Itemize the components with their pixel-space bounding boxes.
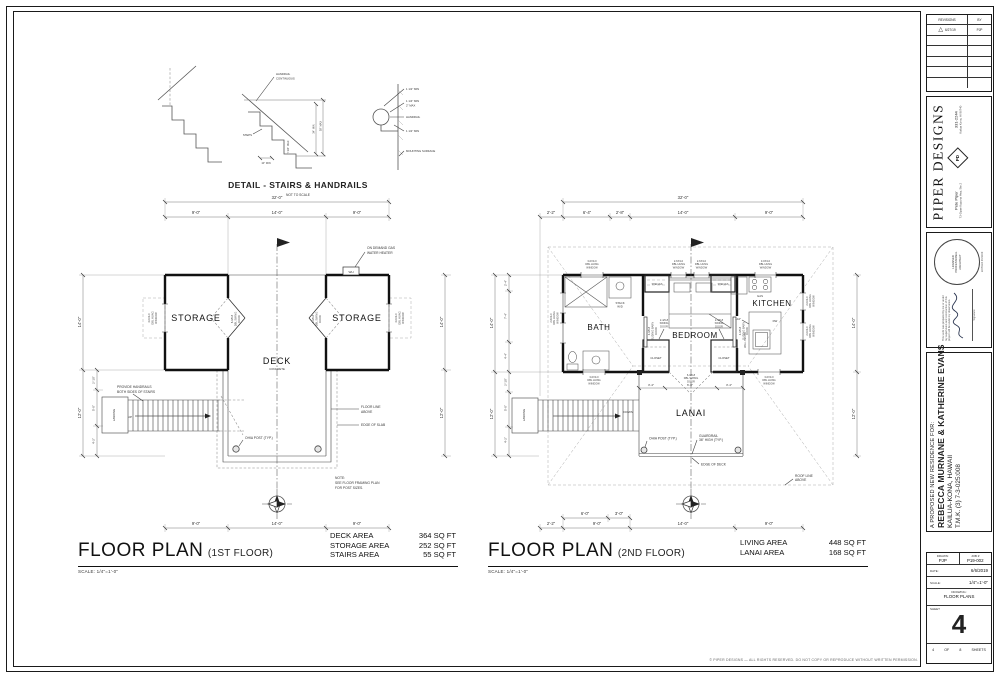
sheet-count-of: OF: [944, 648, 949, 652]
dim-label: 4'-4": [504, 353, 508, 359]
dim-label: 12'-0": [77, 407, 82, 418]
area-row: LANAI AREA 168 SQ FT: [740, 548, 866, 558]
door-tag: 4-0/6-8: [647, 326, 651, 335]
floor1-scale: SCALE: 1/4"=1'-0": [78, 569, 118, 574]
revision-by: PJP: [968, 25, 991, 35]
drawing-row: DRAWING: FLOOR PLANS: [927, 589, 991, 606]
revisions-header-label: REVISIONS: [927, 15, 968, 24]
scale-label: SCALE:: [930, 581, 941, 585]
dim-label: 9'-0": [765, 521, 774, 526]
room-label-kitchen: KITCHEN: [752, 299, 791, 308]
room-label-bath: BATH: [587, 323, 610, 332]
dim-label: 2'-4": [504, 280, 508, 286]
room-sublabel: CONCRETE: [269, 367, 285, 371]
project-owner: REBECCA MURNANE & KATHERINE EVANS: [936, 356, 946, 528]
detail-dim: 34" MIN: [312, 124, 316, 133]
north-arrow-icon: [676, 489, 706, 519]
firm-block-content: PIPER DESIGNS Pete Piper 73-Opae Kupuna …: [930, 104, 988, 221]
scale-value: 1/4"=1'-0": [969, 580, 988, 585]
drawing-sheet: HANDRAIL CONTINUOUS STEPS 10" MIN 7 3/4"…: [0, 0, 1000, 678]
dim-label: 3'-4": [648, 383, 654, 387]
detail-callout: STEPS: [243, 133, 252, 137]
door-tag: 6-0/6-8: [230, 314, 234, 323]
floor2-subtitle: (2ND FLOOR): [618, 548, 685, 559]
second-floor-plan: 32'-0" 2'-2" 6'-4" 2'-8" 14'-0" 9'-0" 6'…: [483, 188, 883, 540]
floor2-roof-lines: [548, 247, 833, 485]
range-label: GAS: [757, 294, 763, 298]
detail-dim: 38" MAX: [319, 121, 323, 131]
revision-row-empty: [927, 46, 991, 57]
area-label: LANAI AREA: [740, 548, 784, 558]
water-heater-tag: WH: [349, 270, 354, 274]
revision-delta-icon: △: [938, 27, 943, 33]
architect-seal-icon: LICENSED PROFESSIONAL ARCHITECT: [934, 239, 980, 285]
detail-dim: 1 1/2" MIN: [406, 87, 419, 91]
area-value: 252 SQ FT: [419, 541, 456, 551]
door-tag: DOOR: [660, 324, 668, 328]
first-floor-plan: 32'-0" 9'-0" 14'-0" 9'-0" 9'-0" 14'-0" 9…: [73, 188, 465, 540]
window-tag: WINDOW: [763, 381, 775, 385]
floor1-area-table: DECK AREA 364 SQ FT STORAGE AREA 252 SQ …: [330, 531, 456, 560]
stair-direction-label: UP: [128, 415, 132, 419]
sheet-count-row: 4 OF 8 SHEETS: [927, 644, 991, 656]
window-tag: WINDOW: [555, 312, 559, 324]
floor2-title: FLOOR PLAN (2ND FLOOR): [488, 540, 685, 562]
callout-floor-line: ABOVE: [361, 410, 373, 414]
project-tmk: T.M.K. (3) 7-3-025:008: [955, 356, 962, 528]
closet-label: CLOSET: [718, 356, 729, 360]
dim-label: 5'-0": [504, 405, 508, 411]
door-tag: DOOR: [745, 327, 749, 335]
detail-dim: 2" MAX: [406, 104, 416, 108]
copyright-note: © PIPER DESIGNS — ALL RIGHTS RESERVED. D…: [620, 658, 918, 662]
detail-callout: MOUNTING SURFACE: [406, 149, 435, 153]
detail-dim: 1 1/4" MIN: [406, 99, 419, 103]
drawing-value: FLOOR PLANS: [930, 594, 988, 599]
dim-label: 3'-0": [615, 511, 624, 516]
dim-label: 14'-0": [678, 521, 689, 526]
dim-label: 3'-4": [726, 383, 732, 387]
area-value: 55 SQ FT: [423, 550, 456, 560]
area-label: LIVING AREA: [740, 538, 787, 548]
area-label: STAIRS AREA: [330, 550, 379, 560]
note-text: NOTE:: [335, 476, 345, 480]
firm-block: PIPER DESIGNS Pete Piper 73-Opae Kupuna …: [926, 96, 992, 228]
revision-row-empty: [927, 36, 991, 47]
floor2-title-text: FLOOR PLAN: [488, 540, 613, 561]
callout-post: OHIA POST (TYP.): [245, 436, 273, 440]
signature-label: Signature: [972, 289, 976, 341]
door-tag: DOOR: [318, 315, 322, 323]
sheet-number: 4: [930, 611, 988, 637]
room-label-lanai: LANAI: [676, 408, 706, 418]
area-row: STAIRS AREA 55 SQ FT: [330, 550, 456, 560]
dim-label: 14'-0": [272, 521, 283, 526]
drawn-job-row: DRAWN: PJP JOB # P19-002: [927, 553, 991, 565]
area-value: 448 SQ FT: [829, 538, 866, 548]
shelves-label: SHELVES: [652, 283, 663, 286]
callout-handrails: PROVIDE HANDRAILS: [117, 385, 152, 389]
closet-label: CLOSET: [650, 356, 661, 360]
dim-label: 6'-8": [687, 383, 693, 387]
dim-label: 5'-0": [92, 405, 96, 411]
floor1-title-text: FLOOR PLAN: [78, 540, 203, 561]
room-label-deck: DECK: [263, 356, 291, 366]
floor1-structure: [102, 238, 411, 490]
dim-label: 12'-0": [489, 408, 494, 419]
door-tag: DOOR: [687, 379, 695, 383]
sheet-count-current: 4: [932, 648, 934, 652]
revision-date: 6/27/19: [945, 28, 956, 32]
detail-dim: 10" MIN: [261, 161, 270, 165]
dim-label: 9'-0": [593, 521, 602, 526]
room-label-storage: STORAGE: [171, 313, 220, 323]
door-tag: SLIDING BARN: [651, 322, 655, 340]
dim-label: 9'-0": [765, 210, 774, 215]
callout-floor-line: FLOOR LINE: [361, 405, 381, 409]
dim-label: 12'-0": [851, 408, 856, 419]
window-tag: WINDOW: [673, 265, 685, 269]
door-tag: DBL SWING: [315, 312, 319, 326]
counter-height-label: +42": [735, 317, 741, 321]
firm-address-1: 73-Opae Kupuna Hwy, Ste 2: [958, 183, 962, 218]
firm-logo-icon: PD: [947, 148, 968, 169]
floor2-title-rule: [488, 566, 868, 567]
firm-address-2: Kailua Kona, HI 96740: [958, 106, 962, 134]
room-label-landing: LANDING: [112, 409, 116, 421]
seal-text: ARCHITECT: [959, 254, 962, 269]
door-tag: DOOR: [237, 315, 241, 323]
detail-callout: HANDRAIL: [406, 115, 421, 119]
dishwasher-label: DW: [773, 319, 778, 323]
floor1-subtitle: (1ST FLOOR): [208, 548, 273, 559]
room-label-bedroom: BEDROOM: [672, 331, 718, 340]
window-tag: WINDOW: [586, 265, 598, 269]
dim-label: 32'-0": [272, 195, 283, 200]
room-label-storage: STORAGE: [332, 313, 381, 323]
stamp-content: This work was prepared by me or under my…: [930, 239, 988, 341]
date-value: 6/6/2019: [971, 568, 988, 573]
detail-geometry: [158, 66, 404, 170]
note-text: SEE FLOOR FRAMING PLAN: [335, 481, 380, 485]
stair-direction-label: DOWN: [624, 410, 634, 414]
note-text: FOR POST SIZES.: [335, 486, 363, 490]
callout-water-heater: WATER HEATER: [367, 251, 393, 255]
dim-label: 9'-0": [192, 210, 201, 215]
floor1-title: FLOOR PLAN (1ST FLOOR): [78, 540, 273, 562]
firm-contact: Pete Piper: [953, 183, 958, 218]
window-tag: 4-0X3-0: [394, 313, 398, 323]
project-location: KAILUA-KONA, HAWAII: [947, 356, 954, 528]
callout-post: OHIA POST (TYP.): [649, 437, 677, 441]
floor2-scale: SCALE: 1/4"=1'-0": [488, 569, 528, 574]
scale-row: SCALE: 1/4"=1'-0": [927, 577, 991, 589]
firm-name: PIPER DESIGNS: [930, 104, 946, 221]
revisions-block: REVISIONS BY △ 6/27/19 PJP: [926, 14, 992, 92]
dim-label: 9'-0": [353, 210, 362, 215]
floor1-title-rule: [78, 566, 458, 567]
dim-label: 2'-10": [92, 376, 96, 384]
dim-label: 4'-2": [92, 438, 96, 444]
window-tag: WINDOW: [811, 295, 815, 307]
area-value: 168 SQ FT: [829, 548, 866, 558]
callout-handrails: BOTH SIDES OF STAIRS: [117, 390, 156, 394]
window-tag: 4-0X3-0: [147, 313, 151, 323]
sheet-number-row: SHEET 4: [927, 606, 991, 644]
floor2-area-table: LIVING AREA 448 SQ FT LANAI AREA 168 SQ …: [740, 538, 866, 557]
callout-guardrail: 36" HIGH (TYP.): [699, 438, 723, 442]
dim-label: 9'-0": [192, 521, 201, 526]
door-tag: DOOR: [715, 324, 723, 328]
dim-label: 14'-0": [77, 316, 82, 327]
dim-label: 2'-8": [616, 210, 625, 215]
room-label-landing: LANDING: [522, 409, 526, 421]
job-value: P19-002: [962, 558, 990, 563]
door-tag: SLIDING BARN: [742, 322, 746, 340]
signature-icon: [951, 289, 967, 341]
seal-expiry: EXPIRES 04/30/20: [981, 239, 984, 285]
project-content: A PROPOSED NEW RESIDENCE FOR: REBECCA MU…: [930, 356, 988, 528]
dim-label: 7'-4": [504, 313, 508, 319]
window-tag: DBL HUNG: [151, 311, 155, 324]
callout-edge-deck: EDGE OF DECK: [701, 463, 727, 467]
callout-roof-line: ABOVE: [795, 478, 807, 482]
area-row: DECK AREA 364 SQ FT: [330, 531, 456, 541]
detail-dim: 1 1/2" MIN: [406, 129, 419, 133]
revision-row-empty: [927, 78, 991, 88]
window-tag: WINDOW: [811, 325, 815, 337]
sheet-info-block: DRAWN: PJP JOB # P19-002 DATE: 6/6/2019 …: [926, 552, 992, 664]
area-row: STORAGE AREA 252 SQ FT: [330, 541, 456, 551]
shelves-label: SHELVES: [718, 283, 729, 286]
callout-water-heater: ON DEMAND GAS: [367, 246, 396, 250]
dim-label: 2'-2": [547, 521, 556, 526]
sheet-count-sheets: SHEETS: [971, 648, 985, 652]
dim-label: 6'-0": [581, 511, 590, 516]
dim-label: 2'-10": [504, 378, 508, 386]
revision-row: △ 6/27/19 PJP: [927, 25, 991, 36]
sheet-count-total: 8: [959, 648, 961, 652]
dim-label: 14'-0": [678, 210, 689, 215]
architect-stamp-block: This work was prepared by me or under my…: [926, 232, 992, 348]
revisions-by-label: BY: [968, 15, 991, 24]
project-block: A PROPOSED NEW RESIDENCE FOR: REBECCA MU…: [926, 352, 992, 532]
area-value: 364 SQ FT: [419, 531, 456, 541]
window-tag: WINDOW: [401, 312, 405, 324]
dim-label: 12'-0": [439, 407, 444, 418]
date-label: DATE:: [930, 569, 939, 573]
area-row: LIVING AREA 448 SQ FT: [740, 538, 866, 548]
dim-label: 32'-0": [678, 195, 689, 200]
callout-edge-slab: EDGE OF SLAB: [361, 423, 386, 427]
detail-callout: HANDRAIL: [276, 72, 291, 76]
date-row: DATE: 6/6/2019: [927, 565, 991, 577]
revision-row-empty: [927, 57, 991, 68]
area-label: DECK AREA: [330, 531, 373, 541]
detail-dim: 7 3/4" MAX: [286, 140, 290, 153]
door-tag: DBL SWING: [234, 312, 238, 326]
window-tag: WINDOW: [588, 381, 600, 385]
dim-label: 6'-4": [583, 210, 592, 215]
area-label: STORAGE AREA: [330, 541, 389, 551]
floor2-structure: [512, 238, 806, 490]
door-tag: 6-0/6-8: [311, 314, 315, 323]
north-arrow-icon: [262, 489, 292, 519]
door-tag: 4-0/6-8: [738, 326, 742, 335]
window-tag: WINDOW: [760, 265, 772, 269]
window-tag: WINDOW: [154, 312, 158, 324]
window-tag: DBL HUNG: [398, 311, 402, 324]
dim-label: 4'-2": [504, 437, 508, 443]
dim-label: 14'-0": [439, 316, 444, 327]
window-tag: WINDOW: [696, 265, 708, 269]
drawn-value: PJP: [929, 558, 957, 563]
dim-label: 14'-0": [272, 210, 283, 215]
revision-row-empty: [927, 67, 991, 78]
firm-phone: 331-2244: [953, 106, 958, 134]
dim-label: 14'-0": [489, 317, 494, 328]
door-tag: DOOR: [654, 327, 658, 335]
washer-dryer-label: W/D: [617, 305, 622, 309]
firm-logo-initials: PD: [955, 155, 960, 161]
detail-callout: CONTINUOUS: [276, 77, 295, 81]
revisions-header: REVISIONS BY: [927, 15, 991, 25]
dim-label: 2'-2": [547, 210, 556, 215]
dim-label: 14'-0": [851, 317, 856, 328]
dim-label: 9'-0": [353, 521, 362, 526]
